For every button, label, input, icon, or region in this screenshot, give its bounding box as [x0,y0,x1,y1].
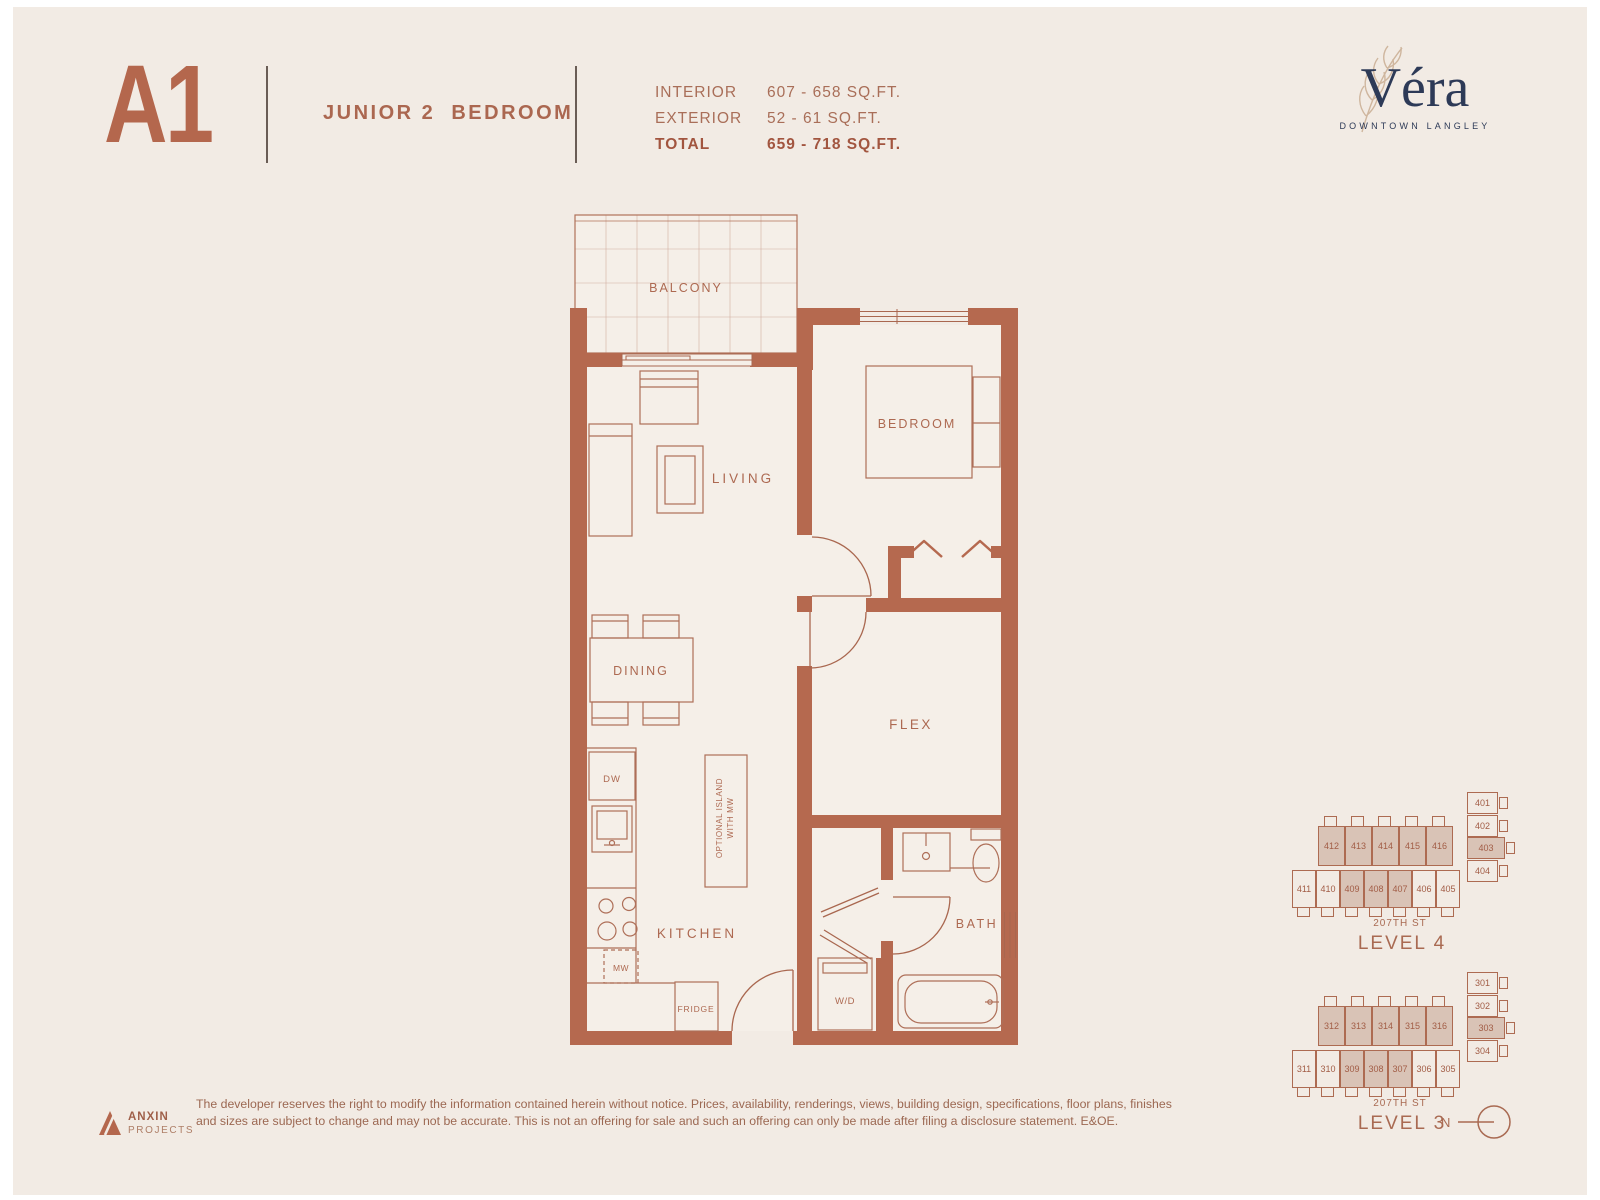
keyplan-unit-413: 413 [1345,826,1372,866]
keyplan-balcony-tab [1321,907,1334,917]
keyplan-unit-404: 404 [1467,860,1498,882]
keyplan-unit-305: 305 [1436,1050,1460,1088]
washer-dryer-label: W/D [835,996,855,1007]
keyplan-balcony-tab [1499,820,1508,832]
keyplan-unit-416: 416 [1426,826,1453,866]
area-label: EXTERIOR [655,110,767,128]
keyplan-unit-302: 302 [1467,995,1498,1017]
area-table: INTERIOR 607 - 658 SQ.FT. EXTERIOR 52 - … [655,80,901,158]
keyplan-balcony-tab [1345,907,1358,917]
dishwasher-label: DW [603,774,621,785]
fridge-label: FRIDGE [678,1004,715,1014]
keyplan-unit-409: 409 [1340,870,1364,908]
keyplan-unit-412: 412 [1318,826,1345,866]
area-row-interior: INTERIOR 607 - 658 SQ.FT. [655,80,901,106]
area-label: TOTAL [655,136,767,154]
area-value: 659 - 718 SQ.FT. [767,136,901,154]
kitchen-label: KITCHEN [657,926,737,941]
keyplan-balcony-tab [1297,1087,1310,1097]
microwave-label: MW [613,963,629,973]
svg-text:WITH MW: WITH MW [726,797,735,838]
keyplan-balcony-tab [1499,865,1508,877]
keyplan-unit-307: 307 [1388,1050,1412,1088]
floor-plan: BALCONY LIVING BEDROOM DINING FLEX KITCH… [560,200,1030,1060]
keyplan-balcony-tab [1345,1087,1358,1097]
keyplan-unit-310: 310 [1316,1050,1340,1088]
logo-name: ANXIN [128,1112,194,1124]
keyplan-unit-410: 410 [1316,870,1340,908]
bedroom-label: BEDROOM [878,417,957,431]
level-label: LEVEL 4 [1317,933,1487,955]
keyplan-unit-308: 308 [1364,1050,1388,1088]
keyplan-unit-311: 311 [1292,1050,1316,1088]
keyplan-unit-406: 406 [1412,870,1436,908]
keyplan-unit-316: 316 [1426,1006,1453,1046]
keyplan-balcony-tab [1499,1000,1508,1012]
keyplan-unit-407: 407 [1388,870,1412,908]
brand-logo: Véra DOWNTOWN LANGLEY [1330,56,1500,131]
area-value: 607 - 658 SQ.FT. [767,84,901,102]
keyplan-unit-313: 313 [1345,1006,1372,1046]
keyplan-balcony-tab [1441,907,1454,917]
keyplan-unit-315: 315 [1399,1006,1426,1046]
keyplan-level4: 207TH ST LEVEL 4 41241341441541641141040… [1285,785,1520,960]
disclaimer: The developer reserves the right to modi… [196,1096,1172,1130]
bath-label: BATH [956,917,998,931]
keyplan-unit-304: 304 [1467,1040,1498,1062]
keyplan-unit-405: 405 [1436,870,1460,908]
living-label: LIVING [712,471,774,486]
area-label: INTERIOR [655,84,767,102]
svg-text:OPTIONAL ISLAND: OPTIONAL ISLAND [715,778,724,858]
plan-type-title: JUNIOR 2 BEDROOM [323,102,573,125]
keyplan-balcony-tab [1499,797,1508,809]
disclaimer-line: and sizes are subject to change and may … [196,1113,1172,1130]
keyplan-balcony-tab [1297,907,1310,917]
keyplan-balcony-tab [1506,1022,1515,1034]
keyplan-unit-312: 312 [1318,1006,1345,1046]
keyplan-balcony-tab [1441,1087,1454,1097]
keyplan-balcony-tab [1417,1087,1430,1097]
keyplan-unit-411: 411 [1292,870,1316,908]
area-value: 52 - 61 SQ.FT. [767,110,882,128]
street-label: 207TH ST [1340,918,1460,929]
keyplan-unit-301: 301 [1467,972,1498,994]
keyplan-balcony-tab [1499,1045,1508,1057]
north-label: N [1441,1115,1450,1130]
keyplan-unit-306: 306 [1412,1050,1436,1088]
keyplan-unit-408: 408 [1364,870,1388,908]
keyplan-unit-303: 303 [1467,1017,1505,1039]
anxin-logo-icon [96,1108,126,1138]
keyplan-balcony-tab [1499,977,1508,989]
keyplan-balcony-tab [1506,842,1515,854]
keyplan-unit-415: 415 [1399,826,1426,866]
keyplan-unit-402: 402 [1467,815,1498,837]
brand-tagline: DOWNTOWN LANGLEY [1330,121,1500,131]
logo-sub: PROJECTS [128,1126,194,1136]
keyplan-unit-414: 414 [1372,826,1399,866]
balcony-label: BALCONY [649,281,723,295]
header-divider-1 [266,66,268,163]
flex-label: FLEX [889,717,933,732]
keyplan-balcony-tab [1393,1087,1406,1097]
area-row-exterior: EXTERIOR 52 - 61 SQ.FT. [655,106,901,132]
keyplan-unit-309: 309 [1340,1050,1364,1088]
plan-code: A1 [104,50,212,160]
keyplan-balcony-tab [1369,907,1382,917]
anxin-logo-text: ANXIN PROJECTS [128,1112,194,1136]
disclaimer-line: The developer reserves the right to modi… [196,1096,1172,1113]
header-divider-2 [575,66,577,163]
keyplan-unit-401: 401 [1467,792,1498,814]
keyplan-balcony-tab [1321,1087,1334,1097]
north-arrow: N [1438,1100,1514,1150]
brand-name: Véra [1330,56,1500,120]
dining-label: DINING [613,664,669,678]
keyplan-unit-314: 314 [1372,1006,1399,1046]
area-row-total: TOTAL 659 - 718 SQ.FT. [655,132,901,158]
keyplan-balcony-tab [1369,1087,1382,1097]
keyplan-balcony-tab [1393,907,1406,917]
keyplan-unit-403: 403 [1467,837,1505,859]
keyplan-balcony-tab [1417,907,1430,917]
